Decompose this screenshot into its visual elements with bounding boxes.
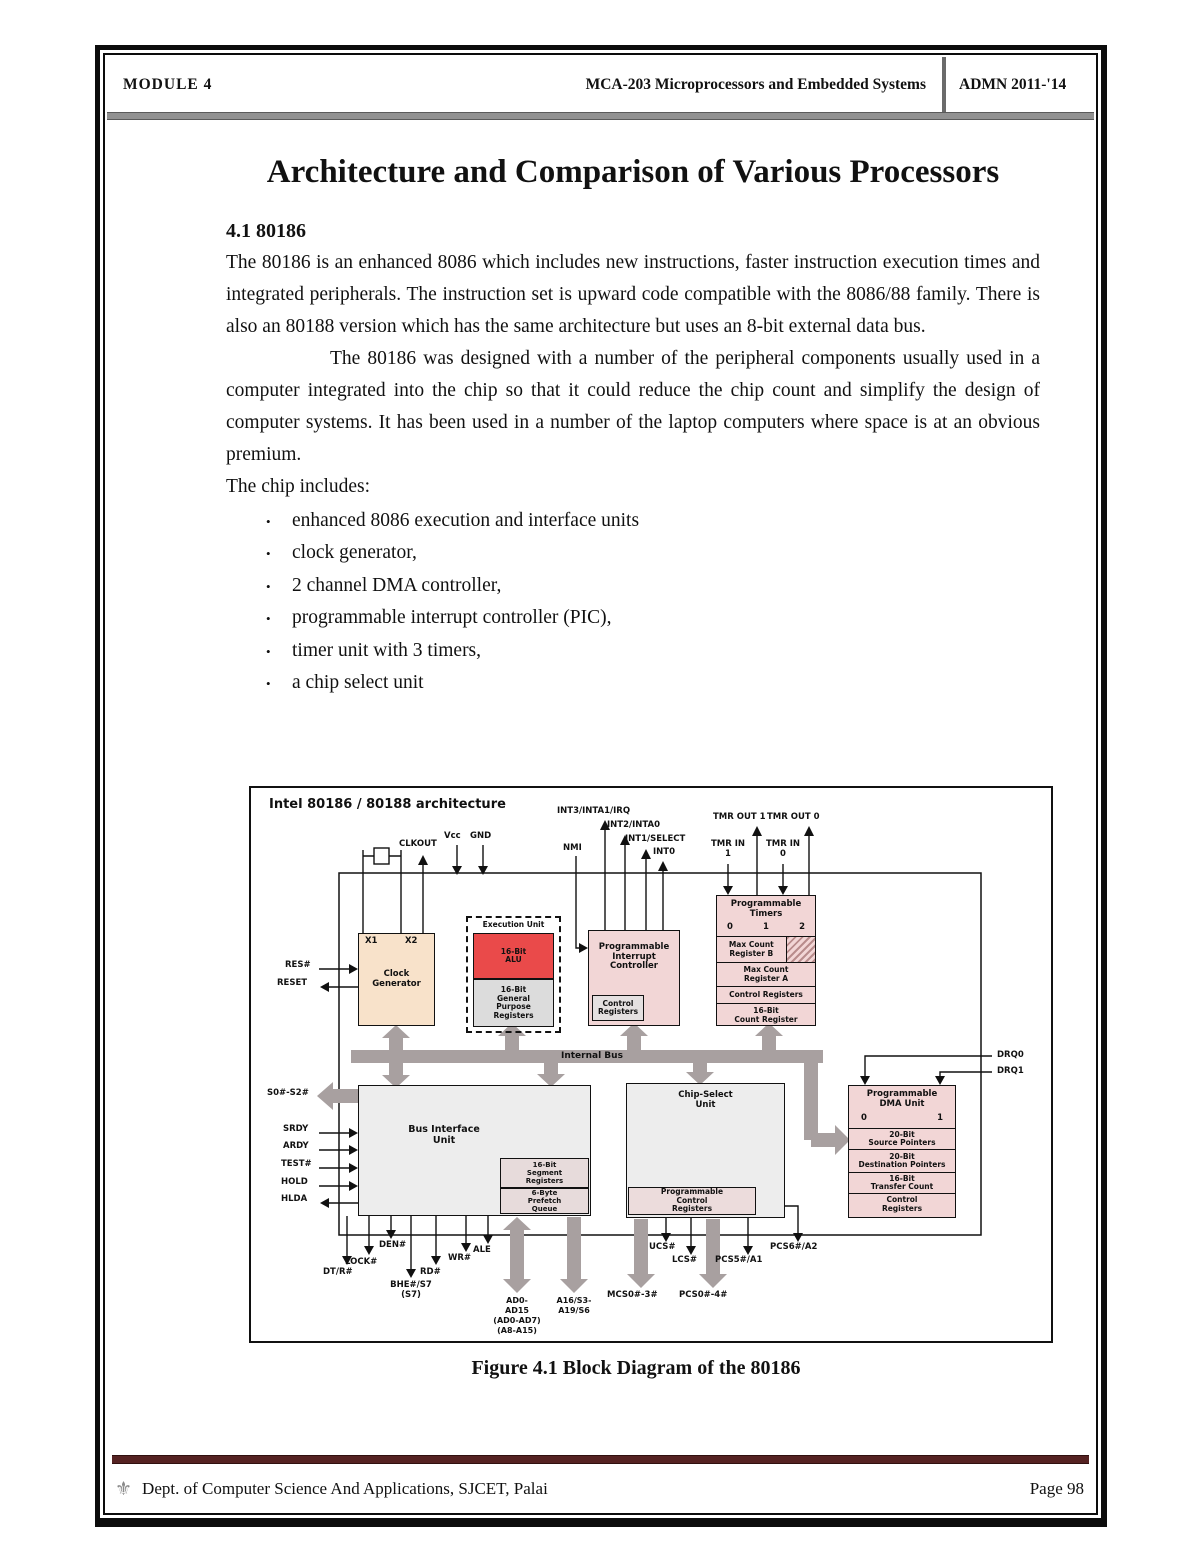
- diagram-canvas: Intel 80186 / 80188 architecture X1 X2 C…: [251, 788, 1051, 1341]
- pin-label-s0-s2: S0#-S2#: [267, 1089, 309, 1099]
- pin-label-tmr-out-0: TMR OUT 0: [767, 813, 820, 823]
- pin-label-pcs0-4: PCS0#-4#: [679, 1291, 727, 1301]
- pic-control-registers-box: Control Registers: [592, 995, 644, 1021]
- pin-label-tmr-out-1: TMR OUT 1: [713, 813, 766, 823]
- page-footer: ⚜ Dept. of Computer Science And Applicat…: [115, 1467, 1084, 1511]
- timer-row: Max Count Register A: [717, 962, 815, 986]
- header-course-title: MCA-203 Microprocessors and Embedded Sys…: [586, 76, 942, 94]
- paragraph-1: The 80186 is an enhanced 8086 which incl…: [226, 247, 1040, 343]
- pin-label-lock: LOCK#: [345, 1258, 377, 1268]
- pin-label-test: TEST#: [281, 1160, 312, 1170]
- alu-block: 16-Bit ALU: [473, 933, 554, 979]
- dma-channel-0-label: 0: [861, 1114, 867, 1124]
- block-diagram-figure: Intel 80186 / 80188 architecture X1 X2 C…: [249, 786, 1053, 1343]
- chip-includes-list: enhanced 8086 execution and interface un…: [226, 505, 1040, 700]
- pin-label-drq0: DRQ0: [997, 1051, 1024, 1061]
- list-item: 2 channel DMA controller,: [292, 570, 1040, 603]
- general-purpose-registers-block: 16-Bit General Purpose Registers: [473, 979, 554, 1027]
- hatched-cell: [786, 937, 815, 962]
- pin-label-tmr-in-0: TMR IN 0: [762, 840, 804, 859]
- document-page: MODULE 4 MCA-203 Microprocessors and Emb…: [95, 45, 1107, 1527]
- chip-select-label: Chip-Select Unit: [627, 1091, 784, 1110]
- segment-registers-box: 16-Bit Segment Registers: [500, 1158, 589, 1188]
- pin-label-ardy: ARDY: [283, 1142, 309, 1152]
- list-item: clock generator,: [292, 537, 1040, 570]
- pin-label-reset: RESET: [277, 979, 307, 989]
- pin-label-a16-a19: A16/S3- A19/S6: [545, 1296, 603, 1316]
- pin-label-ale: ALE: [473, 1246, 491, 1256]
- pin-label-nmi: NMI: [563, 844, 582, 854]
- header-divider-bar: [107, 112, 1094, 120]
- dept-logo-icon: ⚜: [115, 1478, 132, 1500]
- timer-2-label: 2: [799, 923, 805, 933]
- pin-label-hold: HOLD: [281, 1178, 308, 1188]
- pin-label-gnd: GND: [470, 832, 491, 842]
- timer-row: Control Registers: [717, 986, 815, 1003]
- page-header: MODULE 4 MCA-203 Microprocessors and Emb…: [107, 57, 1094, 112]
- bus-interface-unit-block: Bus Interface Unit 16-Bit Segment Regist…: [358, 1085, 591, 1216]
- header-module: MODULE 4: [107, 76, 212, 94]
- pin-label-srdy: SRDY: [283, 1125, 308, 1135]
- clock-generator-label: Clock Generator: [359, 970, 434, 989]
- internal-bus-label: Internal Bus: [561, 1052, 623, 1062]
- header-admn-year: ADMN 2011-'14: [942, 57, 1094, 112]
- footer-accent-bar: [112, 1455, 1089, 1464]
- dma-row: 20-Bit Source Pointers: [849, 1128, 955, 1149]
- pin-label-hlda: HLDA: [281, 1195, 307, 1205]
- pin-label-res: RES#: [285, 961, 311, 971]
- footer-dept-text: Dept. of Computer Science And Applicatio…: [142, 1479, 548, 1499]
- cs-control-registers-box: Programmable Control Registers: [628, 1187, 756, 1215]
- pin-label-int3: INT3/INTA1/IRQ: [557, 807, 630, 817]
- timer-row: Max Count Register B: [717, 936, 815, 962]
- section-heading: 4.1 80186: [226, 215, 1040, 247]
- pin-label-wr: WR#: [448, 1254, 471, 1264]
- text-column: Architecture and Comparison of Various P…: [226, 144, 1040, 700]
- list-item: timer unit with 3 timers,: [292, 635, 1040, 668]
- x1-pin-label: X1: [365, 937, 377, 947]
- x2-pin-label: X2: [405, 937, 417, 947]
- prefetch-queue-box: 6-Byte Prefetch Queue: [500, 1188, 589, 1214]
- pin-label-drq1: DRQ1: [997, 1067, 1024, 1077]
- dma-row: 20-Bit Destination Pointers: [849, 1149, 955, 1172]
- pin-label-tmr-in-1: TMR IN 1: [707, 840, 749, 859]
- pin-label-vcc: Vcc: [444, 832, 461, 842]
- programmable-timers-block: Programmable Timers 0 1 2 Max Count Regi…: [716, 895, 816, 1026]
- chip-select-unit-block: Chip-Select Unit Programmable Control Re…: [626, 1083, 785, 1218]
- list-item: enhanced 8086 execution and interface un…: [292, 505, 1040, 538]
- diagram-title: Intel 80186 / 80188 architecture: [269, 797, 506, 812]
- page-inner-border: MODULE 4 MCA-203 Microprocessors and Emb…: [103, 53, 1098, 1515]
- execution-unit-block: Execution Unit 16-Bit ALU 16-Bit General…: [466, 916, 561, 1033]
- footer-page-number: Page 98: [1030, 1479, 1084, 1499]
- pin-label-den: DEN#: [379, 1241, 406, 1251]
- crystal-icon: [374, 848, 389, 864]
- list-item: programmable interrupt controller (PIC),: [292, 602, 1040, 635]
- clock-generator-block: X1 X2 Clock Generator: [358, 933, 435, 1026]
- dma-row: Control Registers: [849, 1193, 955, 1215]
- timer-row-label: Max Count Register B: [717, 937, 786, 962]
- pin-label-ucs: UCS#: [649, 1243, 676, 1253]
- pin-label-int0: INT0: [653, 848, 675, 858]
- dma-unit-block: Programmable DMA Unit 0 1 20-Bit Source …: [848, 1085, 956, 1218]
- pin-label-pcs5: PCS5#/A1: [715, 1256, 762, 1266]
- pin-label-bhe: BHE#/S7 (S7): [385, 1281, 437, 1300]
- paragraph-2: The 80186 was designed with a number of …: [226, 343, 1040, 471]
- interrupt-controller-block: Programmable Interrupt Controller Contro…: [588, 930, 680, 1026]
- page-title: Architecture and Comparison of Various P…: [226, 144, 1040, 201]
- pin-label-clkout: CLKOUT: [399, 840, 437, 850]
- pin-label-int1: INT1/SELECT: [625, 835, 685, 845]
- interrupt-controller-label: Programmable Interrupt Controller: [589, 943, 679, 972]
- pin-label-mcs: MCS0#-3#: [607, 1291, 658, 1301]
- timers-label: Programmable Timers: [717, 900, 815, 919]
- execution-unit-label: Execution Unit: [468, 920, 559, 930]
- pin-label-rd: RD#: [420, 1268, 441, 1278]
- timer-row: 16-Bit Count Register: [717, 1003, 815, 1027]
- dma-label: Programmable DMA Unit: [849, 1090, 955, 1109]
- dma-row: 16-Bit Transfer Count: [849, 1172, 955, 1193]
- dma-channel-1-label: 1: [937, 1114, 943, 1124]
- pin-label-lcs: LCS#: [672, 1256, 697, 1266]
- figure-caption: Figure 4.1 Block Diagram of the 80186: [226, 1357, 1046, 1380]
- list-item: a chip select unit: [292, 667, 1040, 700]
- pin-label-int2: INT2/INTA0: [607, 821, 660, 831]
- page-content: MODULE 4 MCA-203 Microprocessors and Emb…: [107, 57, 1094, 1511]
- paragraph-3: The chip includes:: [226, 471, 1040, 503]
- pin-label-pcs6: PCS6#/A2: [770, 1243, 817, 1253]
- pin-label-dtr: DT/R#: [323, 1268, 353, 1278]
- pin-label-ad0-ad15: AD0- AD15 (AD0-AD7) (A8-A15): [489, 1296, 545, 1336]
- biu-label: Bus Interface Unit: [379, 1124, 509, 1146]
